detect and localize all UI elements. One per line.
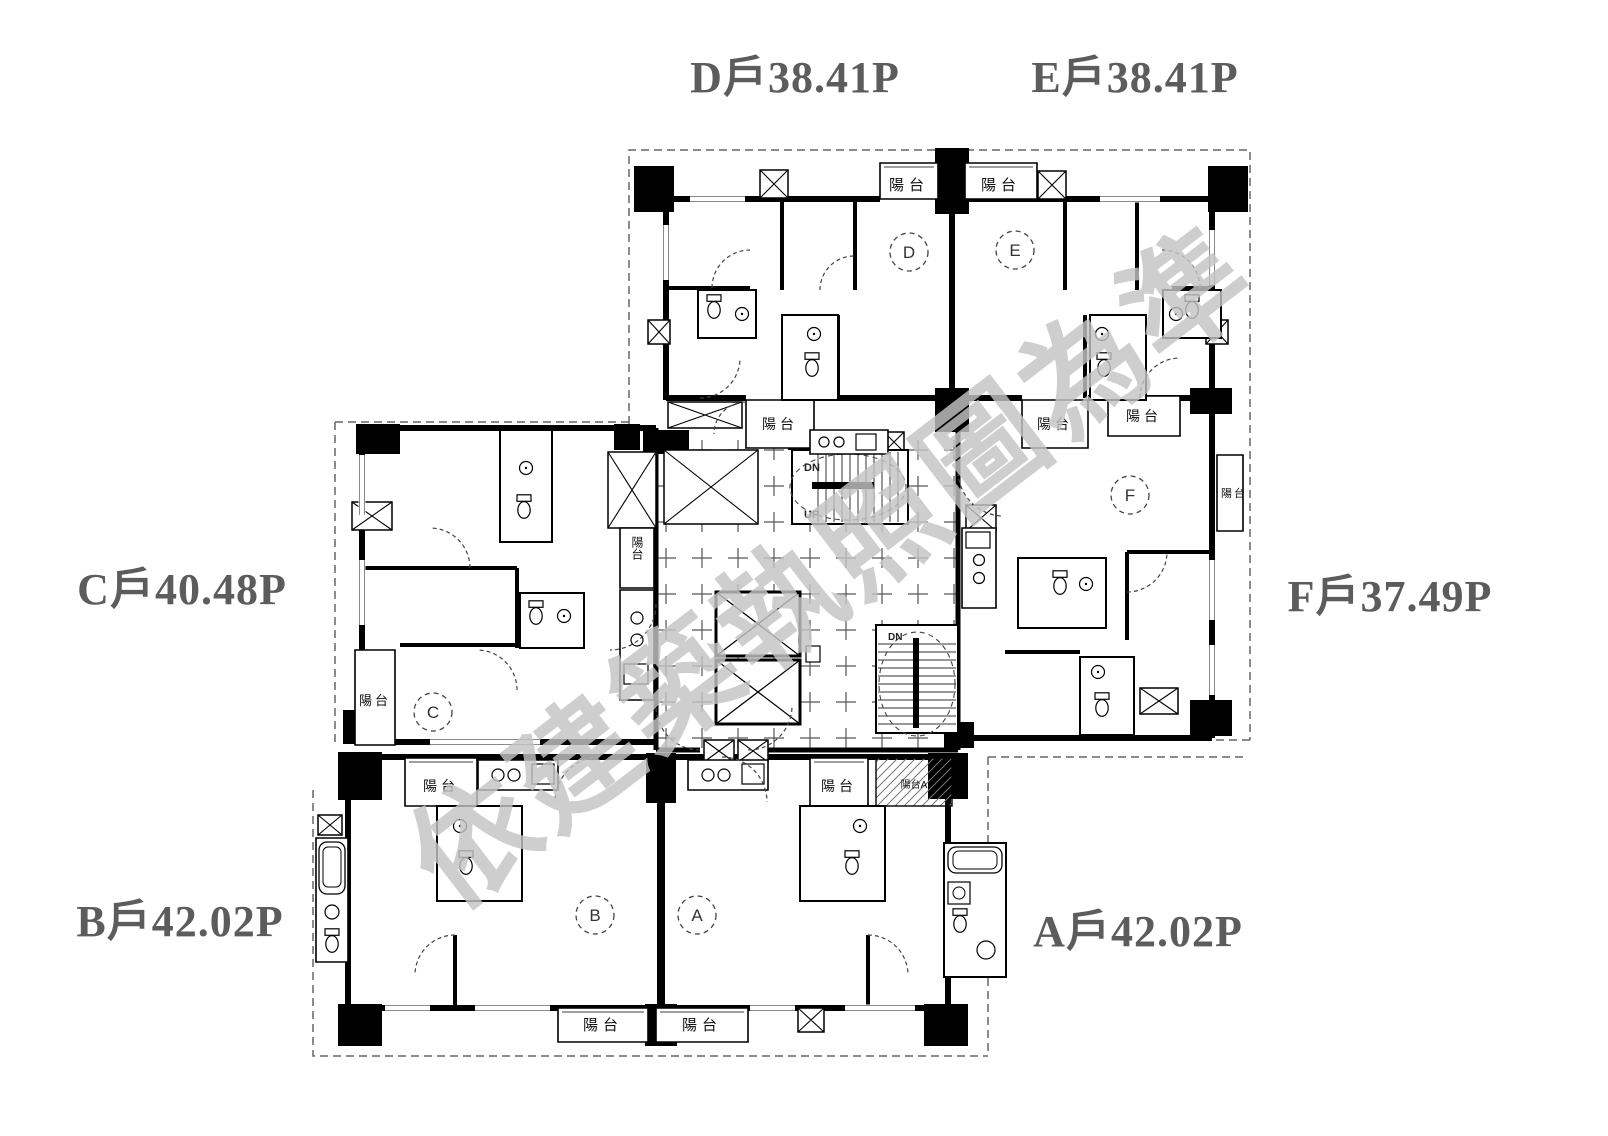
unit-label-c: C戶40.48P — [77, 565, 287, 614]
balcony-label: 陽台 — [762, 416, 798, 432]
balcony-label: 陽台 — [359, 693, 391, 708]
unit-circle-letter-d: D — [903, 243, 915, 262]
balcony-label: 陽台 — [682, 1017, 722, 1034]
balcony-label: 陽台 — [889, 177, 929, 194]
stair-dn-label: DN — [804, 462, 820, 474]
unit-circle-letter-f: F — [1125, 486, 1135, 505]
balcony-label: 陽台 — [1221, 486, 1247, 500]
floor-plan-drawing: DN UP DN 陽台 陽台 陽台 陽台 陽台 陽台 陽台 陽台 陽台 陽台 陽… — [0, 0, 1608, 1136]
balcony-label: 陽台 — [981, 177, 1021, 194]
unit-label-d: D戶38.41P — [690, 53, 900, 102]
balcony-label: 陽台 — [583, 1017, 623, 1034]
unit-circle-letter-a: A — [691, 906, 703, 925]
balcony-a-label: 陽台A — [901, 778, 928, 791]
floor-plan-page: DN UP DN 陽台 陽台 陽台 陽台 陽台 陽台 陽台 陽台 陽台 陽台 陽… — [0, 0, 1608, 1136]
unit-circle-letter-c: C — [427, 703, 439, 722]
stair2-dn-label: DN — [888, 632, 902, 643]
balcony-label: 陽台 — [821, 778, 857, 794]
unit-label-a: A戶42.02P — [1033, 907, 1243, 956]
unit-circle-letter-e: E — [1009, 241, 1020, 260]
staircase-lower: DN — [876, 625, 958, 736]
unit-circle-letter-b: B — [589, 906, 600, 925]
unit-label-e: E戶38.41P — [1031, 53, 1238, 102]
unit-label-f: F戶37.49P — [1288, 572, 1493, 621]
unit-label-b: B戶42.02P — [76, 897, 283, 946]
balcony-label-vertical: 陽台 — [630, 536, 644, 560]
